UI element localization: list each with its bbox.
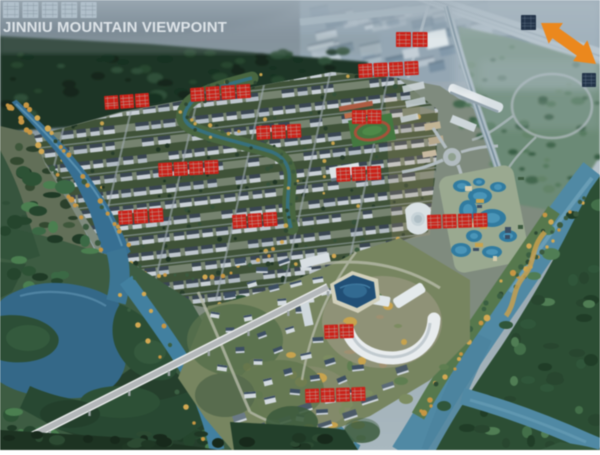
svg-text:JINNIU MOUNTAIN VIEWPOINT: JINNIU MOUNTAIN VIEWPOINT [3, 19, 227, 36]
